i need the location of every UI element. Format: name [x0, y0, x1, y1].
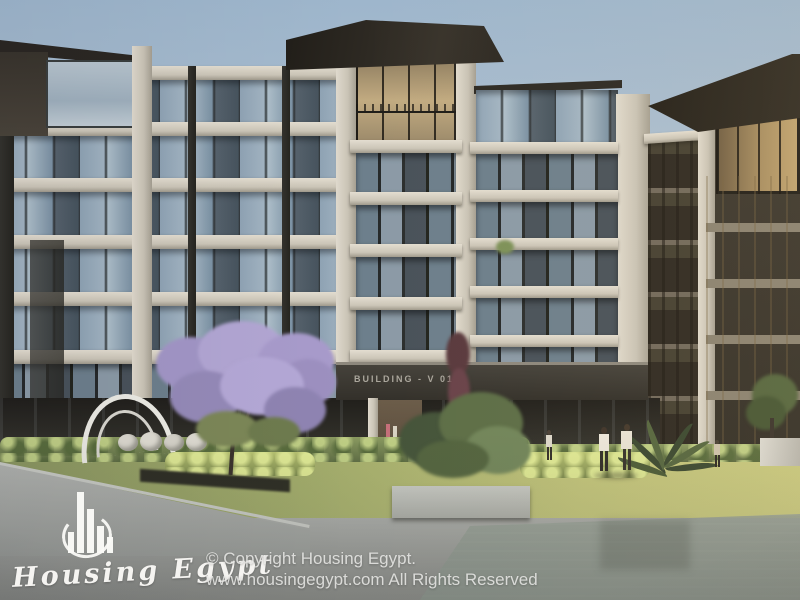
top-glass-box [476, 90, 618, 142]
corner-glass-box [46, 60, 134, 128]
floor-slab [350, 140, 462, 153]
person-leg [550, 447, 552, 460]
floor-slab [350, 297, 462, 310]
pool-reflection [600, 520, 690, 570]
distant-pedestrian [712, 440, 722, 468]
balcony-slab [470, 238, 618, 250]
potted-tree [746, 374, 800, 470]
building-sign: BUILDING - V 01 [354, 374, 454, 384]
window-row [476, 250, 618, 286]
person-leg [623, 449, 626, 470]
window-row [476, 202, 618, 238]
watermark-logo [54, 486, 124, 562]
pedestrian [596, 427, 612, 477]
window-row [356, 153, 456, 192]
distant-pedestrian [544, 430, 554, 462]
facade-dark-panel [30, 240, 64, 405]
window-row [476, 298, 618, 335]
balcony-slab [470, 335, 618, 347]
canopy-puff-green [248, 417, 300, 447]
roof-soffit [0, 52, 48, 136]
person-head [624, 424, 630, 431]
green-bush [395, 386, 535, 480]
person-leg [547, 447, 549, 460]
balcony-slab [470, 286, 618, 298]
balcony-plant [496, 240, 514, 254]
tree-canopy [746, 396, 786, 430]
person-leg [600, 451, 603, 471]
person-torso [621, 431, 632, 449]
window-row [356, 257, 456, 297]
person-leg [628, 449, 631, 470]
person-head [601, 427, 607, 434]
window-row [356, 310, 456, 350]
bush-puff [417, 440, 489, 478]
white-planter [760, 438, 800, 466]
render-screenshot: BUILDING - V 01 [0, 0, 800, 600]
copyright-line1: © Copyright Housing Egypt. [206, 548, 538, 569]
logo-bar-icon [77, 492, 84, 553]
person-leg [718, 455, 720, 467]
balcony-railing [356, 104, 456, 113]
logo-bar-icon [107, 537, 113, 553]
person-torso [714, 444, 720, 455]
window-row [356, 205, 456, 244]
logo-bar-icon [97, 526, 104, 553]
pedestrian [618, 424, 636, 476]
logo-bar-icon [87, 509, 94, 553]
person-torso [599, 434, 609, 451]
person-leg [605, 451, 608, 471]
person-leg [715, 455, 717, 467]
copyright-text: © Copyright Housing Egypt. www.housingeg… [206, 548, 538, 590]
balcony-slab [470, 142, 618, 154]
stone [118, 434, 138, 451]
floor-slab [350, 192, 462, 205]
window-row [476, 154, 618, 190]
balcony-slab [470, 190, 618, 202]
floor-slab [350, 244, 462, 257]
pool-ledge [392, 486, 530, 518]
copyright-line2: www.housingegypt.com All Rights Reserved [206, 569, 538, 590]
jacaranda-tree [148, 315, 338, 475]
logo-bar-icon [68, 532, 74, 553]
person-torso [546, 435, 552, 447]
